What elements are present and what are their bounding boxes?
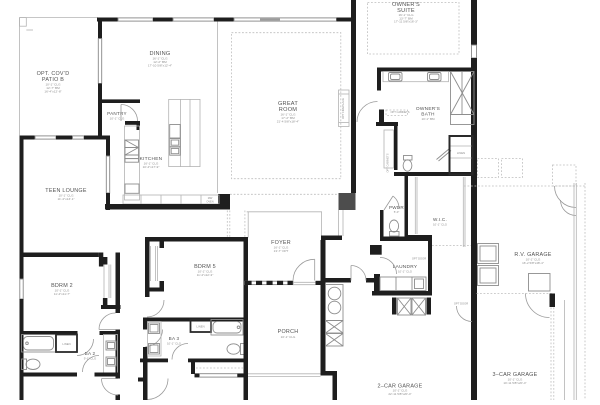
svg-text:OVEN: OVEN: [206, 199, 213, 203]
svg-text:22'-11 5/8"x20'-4": 22'-11 5/8"x20'-4": [388, 392, 411, 396]
svg-text:BA 3: BA 3: [169, 336, 180, 341]
svg-text:OPT DOOR: OPT DOOR: [412, 257, 426, 261]
svg-text:LINEN: LINEN: [62, 342, 70, 346]
svg-text:10'-1" CLG: 10'-1" CLG: [433, 223, 448, 227]
svg-text:OPT FIREPLACE: OPT FIREPLACE: [341, 98, 345, 119]
svg-text:OPT DOOR: OPT DOOR: [454, 302, 468, 306]
svg-text:OWNER'S: OWNER'S: [416, 106, 440, 112]
svg-text:5'-0": 5'-0": [394, 210, 400, 214]
svg-text:9'-1" CLG: 9'-1" CLG: [84, 357, 97, 361]
svg-text:W.I.C.: W.I.C.: [433, 217, 447, 222]
svg-text:BA 2: BA 2: [85, 351, 96, 356]
svg-text:LINEN: LINEN: [196, 325, 204, 329]
svg-text:OPT CABINETS: OPT CABINETS: [386, 153, 390, 172]
svg-text:10'-1" CLG: 10'-1" CLG: [110, 117, 125, 121]
svg-text:11'-4"x12'-3": 11'-4"x12'-3": [197, 273, 214, 277]
svg-text:21'-4 5/8"x18'-4": 21'-4 5/8"x18'-4": [277, 120, 299, 124]
svg-text:11'-4"x13'-1": 11'-4"x13'-1": [57, 197, 74, 201]
svg-text:10'-1" CLG: 10'-1" CLG: [398, 270, 413, 274]
svg-text:LINEN: LINEN: [457, 151, 465, 155]
svg-text:OPT CABINETS: OPT CABINETS: [391, 110, 410, 114]
svg-text:10'-1" BM: 10'-1" BM: [422, 117, 435, 121]
svg-text:10'-11 5/8"x20'-4": 10'-11 5/8"x20'-4": [503, 381, 526, 385]
svg-text:17'-10 5/8"x12'-4": 17'-10 5/8"x12'-4": [148, 64, 172, 68]
svg-text:16'-2 5/8"x48'-4": 16'-2 5/8"x48'-4": [522, 261, 544, 265]
svg-text:13'-7" OPT: 13'-7" OPT: [274, 249, 289, 253]
svg-text:10'-1" CLG: 10'-1" CLG: [281, 335, 296, 339]
svg-text:11'-4"x11'-7": 11'-4"x11'-7": [54, 292, 70, 296]
svg-text:16'-4"x12'-8": 16'-4"x12'-8": [44, 90, 61, 94]
svg-text:PANTRY: PANTRY: [107, 111, 127, 116]
svg-text:17'-11 5/8"x16'-3": 17'-11 5/8"x16'-3": [394, 20, 418, 24]
svg-text:10'-4"x17'-9": 10'-4"x17'-9": [143, 165, 160, 169]
svg-text:10'-1" CLG: 10'-1" CLG: [167, 342, 182, 346]
